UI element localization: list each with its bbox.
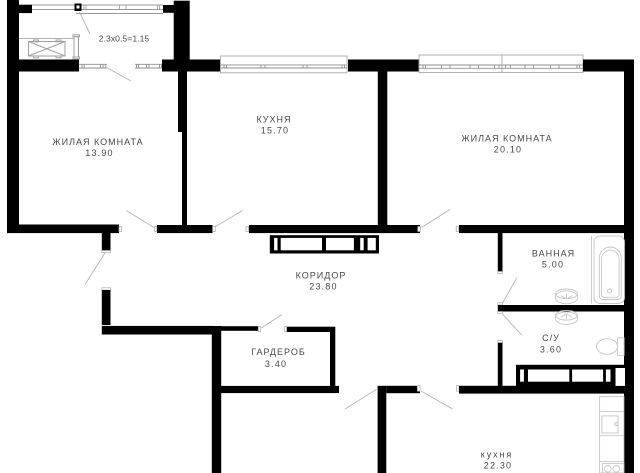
svg-text:13.90: 13.90 <box>85 148 114 158</box>
svg-text:22.30: 22.30 <box>484 461 513 471</box>
svg-text:ЖИЛАЯ КОМНАТА: ЖИЛАЯ КОМНАТА <box>52 137 143 147</box>
svg-text:3.60: 3.60 <box>540 345 562 355</box>
svg-text:С/У: С/У <box>542 333 560 343</box>
svg-text:КУХНЯ: КУХНЯ <box>256 115 291 125</box>
svg-text:3.40: 3.40 <box>265 359 287 369</box>
svg-text:ВАННАЯ: ВАННАЯ <box>532 249 575 259</box>
svg-text:кухня: кухня <box>481 450 513 460</box>
svg-text:23.80: 23.80 <box>309 282 338 292</box>
svg-text:20.10: 20.10 <box>494 145 523 155</box>
svg-text:15.70: 15.70 <box>261 126 290 136</box>
svg-text:5.00: 5.00 <box>542 260 564 270</box>
svg-text:ЖИЛАЯ КОМНАТА: ЖИЛАЯ КОМНАТА <box>461 134 552 144</box>
svg-text:2.3x0.5=1.15: 2.3x0.5=1.15 <box>99 34 150 44</box>
svg-text:ГАРДЕРОБ: ГАРДЕРОБ <box>251 347 306 357</box>
svg-text:КОРИДОР: КОРИДОР <box>296 271 347 281</box>
